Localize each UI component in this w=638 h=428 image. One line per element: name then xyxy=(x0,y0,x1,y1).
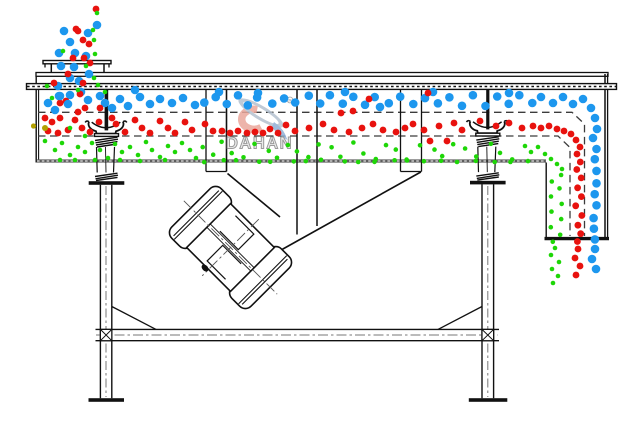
svg-text:DAHAN: DAHAN xyxy=(226,135,293,153)
